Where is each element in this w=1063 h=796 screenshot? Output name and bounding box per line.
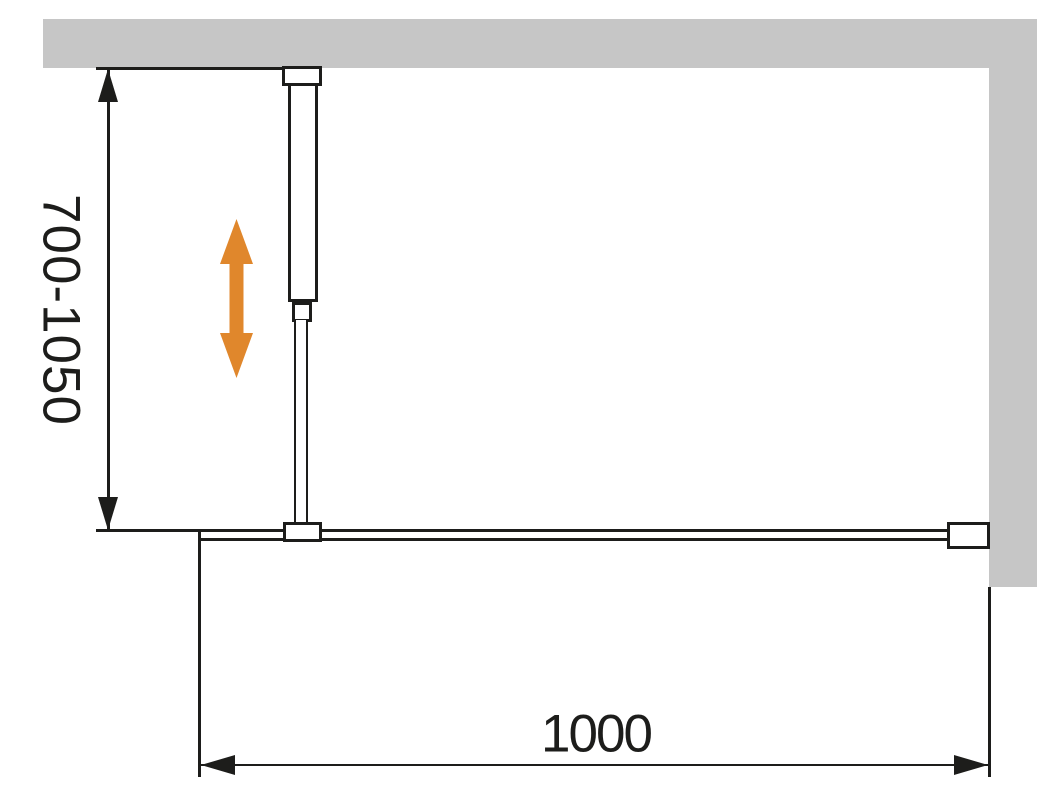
wall-top — [43, 19, 1037, 68]
support-bar-glass-clamp — [283, 522, 322, 542]
vertical-dimension-line — [107, 69, 110, 530]
dimension-label-support-bar-range: 700-1050 — [35, 194, 88, 426]
dimension-arrow-left-icon — [201, 755, 235, 775]
extension-line-left — [198, 532, 201, 777]
ceiling-reference-line — [96, 67, 285, 70]
glass-wall-profile — [947, 522, 990, 549]
wall-right — [989, 19, 1037, 587]
dimension-arrow-up-icon — [98, 69, 118, 102]
support-bar-inner-rod — [294, 320, 308, 524]
dimension-arrow-right-icon — [954, 755, 988, 775]
support-bar-outer-tube — [288, 84, 318, 302]
horizontal-dimension-line — [201, 764, 988, 767]
support-bar-collar — [292, 302, 312, 322]
dimension-label-panel-width: 1000 — [541, 708, 651, 761]
extension-line-right — [988, 587, 991, 777]
support-bar-wall-bracket — [282, 66, 322, 86]
glass-panel-top-line — [96, 529, 948, 532]
dimension-arrow-down-icon — [98, 497, 118, 530]
installation-drawing: 700-1050 1000 — [0, 0, 1063, 796]
adjust-arrow-icon — [218, 219, 255, 378]
